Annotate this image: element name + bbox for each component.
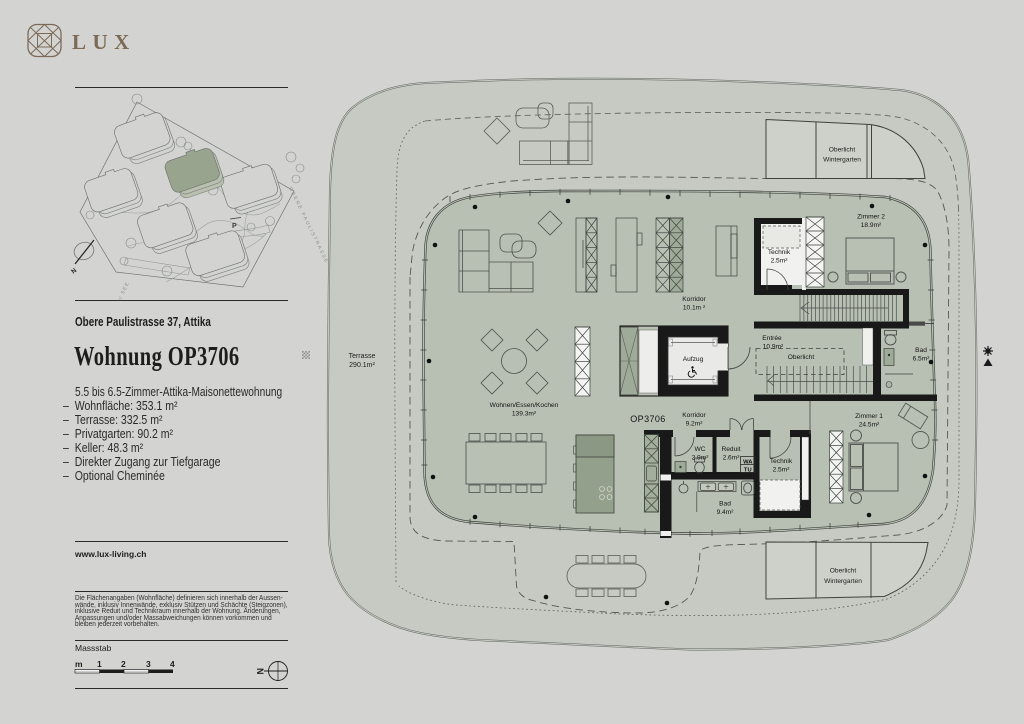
svg-text:290.1m²: 290.1m²	[349, 362, 375, 369]
svg-text:OP3706: OP3706	[630, 414, 665, 424]
svg-text:Oberlicht: Oberlicht	[830, 568, 857, 575]
svg-text:Korridor: Korridor	[682, 412, 706, 419]
svg-text:6.5m²: 6.5m²	[913, 356, 931, 363]
svg-text:Korridor: Korridor	[682, 296, 706, 303]
svg-text:WC: WC	[695, 446, 706, 453]
svg-text:10.9m²: 10.9m²	[763, 344, 784, 351]
svg-text:24.5m²: 24.5m²	[859, 422, 880, 429]
svg-text:Reduit: Reduit	[721, 446, 740, 453]
svg-text:139.3m²: 139.3m²	[512, 411, 537, 418]
svg-text:Entrée: Entrée	[762, 335, 782, 342]
svg-text:Bad: Bad	[719, 501, 731, 508]
svg-text:Bad: Bad	[915, 347, 927, 354]
svg-text:2.6m²: 2.6m²	[723, 455, 741, 462]
svg-text:Wintergarten: Wintergarten	[823, 157, 861, 164]
svg-text:WA: WA	[743, 459, 753, 465]
svg-text:Aufzug: Aufzug	[683, 356, 704, 363]
svg-text:TU: TU	[744, 467, 752, 473]
svg-text:18.9m²: 18.9m²	[861, 222, 882, 229]
svg-text:Terrasse: Terrasse	[349, 353, 376, 360]
svg-text:Wintergarten: Wintergarten	[824, 578, 862, 585]
svg-text:Wohnen/Essen/Kochen: Wohnen/Essen/Kochen	[490, 402, 559, 409]
svg-text:Zimmer 2: Zimmer 2	[857, 214, 885, 221]
svg-text:Technik: Technik	[770, 458, 793, 465]
svg-text:Oberlicht: Oberlicht	[788, 354, 815, 361]
svg-text:2.5m²: 2.5m²	[771, 258, 789, 265]
svg-text:Technik: Technik	[768, 249, 791, 256]
svg-text:9.2m²: 9.2m²	[686, 421, 704, 428]
svg-text:Zimmer 1: Zimmer 1	[855, 413, 883, 420]
svg-text:2.9m²: 2.9m²	[692, 455, 710, 462]
svg-text:9.4m²: 9.4m²	[717, 509, 735, 516]
svg-text:Oberlicht: Oberlicht	[829, 147, 856, 154]
svg-text:10.1m ²: 10.1m ²	[683, 305, 706, 312]
svg-text:2.5m²: 2.5m²	[773, 467, 791, 474]
